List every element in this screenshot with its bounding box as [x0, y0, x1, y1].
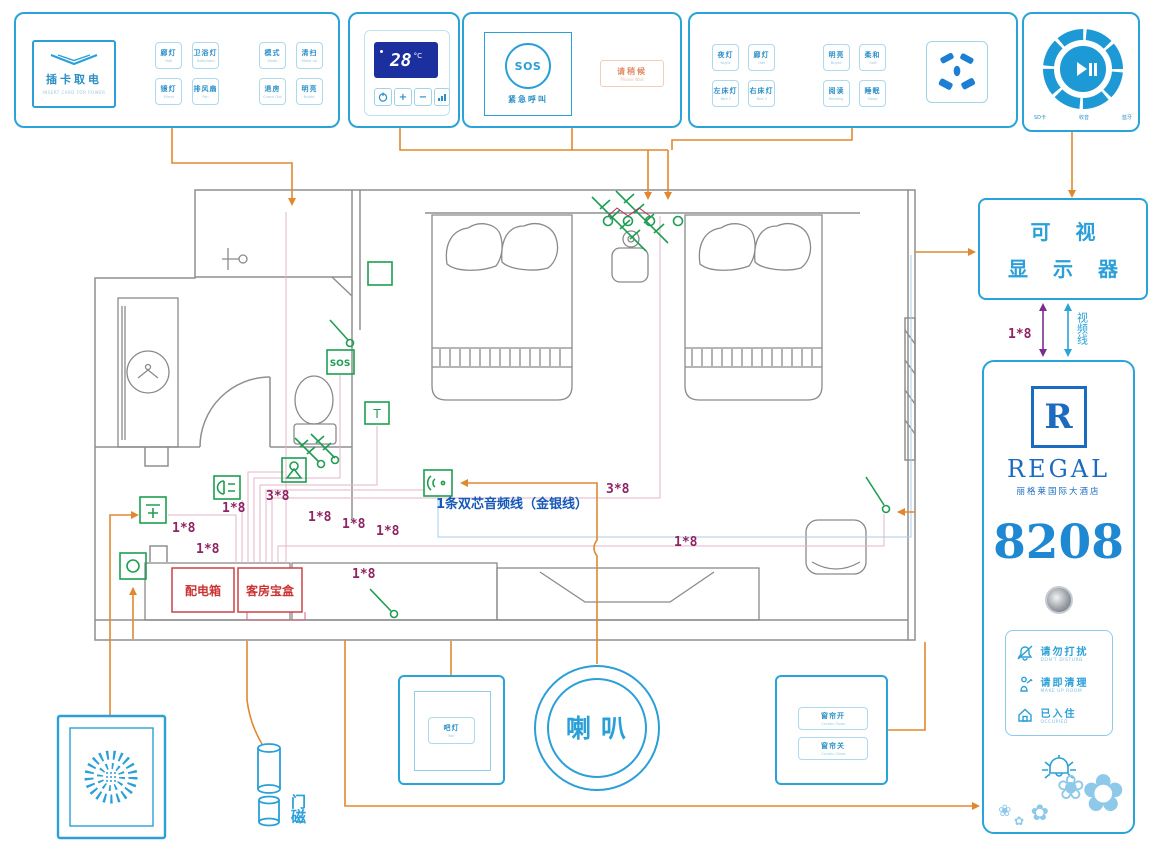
low-cabinet: [292, 563, 497, 620]
sink: [127, 351, 169, 393]
switch-corridor: [370, 589, 391, 611]
fan-icon: [437, 92, 447, 102]
source-bluetooth-label[interactable]: 蓝牙: [1122, 114, 1132, 121]
bed-2: [685, 215, 822, 400]
regal-doorplate: R REGAL 丽格莱国际大酒店 8208 请勿打扰DON'T DISTURB …: [982, 360, 1135, 834]
armchair: [806, 520, 866, 574]
sos-button[interactable]: SOS: [505, 43, 551, 89]
bed-1-pillows: [446, 224, 557, 271]
flower-icon: ✿: [1081, 764, 1125, 824]
wire-gauge-labels: 1*8 1*8 1*8 3*8 1*8 1*8 1*8 1*8 3*8 1*8: [172, 482, 698, 582]
sos-caption: 紧急呼叫: [508, 94, 548, 105]
regal-logo: R: [1031, 386, 1087, 448]
fan-speed-button[interactable]: [434, 88, 450, 106]
svg-text:3*8: 3*8: [606, 482, 630, 497]
door-magnet-label: 门磁: [289, 793, 307, 825]
panel-lights-socket: 夜灯Night 廊灯Hall 左床灯Bed 1 右床灯Bed 2 明亮Brigh…: [688, 12, 1018, 128]
temp-up-button[interactable]: +: [394, 88, 412, 106]
lcd-dot: [380, 50, 383, 53]
source-radio-label[interactable]: 收音: [1079, 114, 1089, 121]
svg-text:1*8: 1*8: [196, 542, 220, 557]
house-icon: [1016, 706, 1034, 724]
flower-icon: ✿: [1031, 801, 1049, 826]
svg-text:1*8: 1*8: [172, 521, 196, 536]
keypad-symbol: [368, 262, 392, 285]
video-cable-label: 视频线: [1076, 311, 1089, 345]
device-symbols: [120, 191, 890, 618]
svg-text:1*8: 1*8: [342, 517, 366, 532]
button-bright[interactable]: 明亮Bright: [296, 78, 323, 105]
flower-icon: ❀: [998, 801, 1011, 820]
card-chevron-icon: [46, 53, 102, 67]
tv: [540, 572, 714, 602]
flower-icon: ✿: [1014, 814, 1024, 828]
hotel-wiring-diagram: 配电箱 客房宝盒 SOS T 1条双芯音频线（金银线） 1*8: [0, 0, 1150, 841]
status-indicator-frame: 请勿打扰DON'T DISTURB 请即清理MAKE UP ROOM 已入住OC…: [1005, 630, 1113, 736]
button-bar-light[interactable]: 吧灯 Bar: [428, 717, 475, 744]
button-exhaust-fan[interactable]: 排风扇Fan: [192, 78, 219, 105]
power-icon: [378, 92, 388, 102]
button-checkout[interactable]: 退房Check Out: [259, 78, 286, 105]
signal-wires: [168, 212, 911, 620]
video-display-box: 可 视 显 示 器: [978, 198, 1148, 300]
button-bathroom-light[interactable]: 卫浴灯Bathroom: [192, 42, 219, 69]
display-title-line1: 可 视: [1022, 216, 1105, 245]
room-controller-label: 客房宝盒: [245, 583, 295, 598]
button-scene-bright[interactable]: 明亮Bright: [823, 44, 850, 71]
button-mirror-light[interactable]: 镜灯Mirror: [155, 78, 182, 105]
card-slot-title: 插卡取电: [46, 71, 102, 87]
doorbell-icon[interactable]: [1037, 750, 1081, 790]
power-socket[interactable]: [926, 41, 988, 103]
svg-text:1*8: 1*8: [376, 524, 400, 539]
switch-right-wall: [866, 477, 884, 505]
svg-text:1*8: 1*8: [674, 535, 698, 550]
regal-hotel-name: 丽格莱国际大酒店: [1016, 485, 1100, 497]
svg-text:3*8: 3*8: [266, 489, 290, 504]
panel-sos: SOS 紧急呼叫 请稍候 Please Wait: [462, 12, 682, 128]
occupied-indicator[interactable]: 已入住OCCUPIED: [1016, 705, 1077, 725]
ceiling-speaker: 喇叭: [535, 666, 659, 790]
power-wires: [110, 128, 1072, 806]
button-left-bed-light[interactable]: 左床灯Bed 1: [712, 80, 739, 107]
power-button[interactable]: [374, 88, 392, 106]
button-scene-soft[interactable]: 柔和Soft: [859, 44, 886, 71]
door-magnet: 门磁: [258, 744, 307, 826]
socket-symbol: [120, 553, 146, 579]
speaker-label: 喇叭: [566, 714, 636, 743]
towel-switch-2: [311, 434, 335, 458]
no-disturb-icon: [1016, 644, 1034, 662]
bedside-switch-1: [592, 197, 646, 251]
peephole: [1045, 586, 1073, 614]
display-title-line2: 显 示 器: [999, 253, 1127, 282]
regal-brand: REGAL: [1007, 455, 1110, 483]
dnd-indicator[interactable]: 请勿打扰DON'T DISTURB: [1016, 643, 1089, 663]
plan-texts: SOS T 1条双芯音频线（金银线）: [330, 359, 588, 512]
panel-card-power: 插卡取电 INSERT CARD FOR POWER 廊灯Hall 卫浴灯Bat…: [14, 12, 340, 128]
button-curtain-close[interactable]: 窗帘关 Curtain Close: [798, 737, 868, 760]
panel-thermostat: 28 °C + −: [348, 12, 460, 128]
room-number: 8208: [993, 515, 1124, 570]
music-dial[interactable]: [1039, 25, 1127, 113]
panel-music-dial: SD卡 收音 蓝牙: [1022, 12, 1140, 132]
distribution-box-label: 配电箱: [185, 583, 221, 598]
please-wait-indicator[interactable]: 请稍候 Please Wait: [600, 60, 664, 87]
panel-bar-light: 吧灯 Bar: [398, 675, 505, 785]
temperature-value: 28: [390, 50, 412, 71]
audio-cable-note: 1条双芯音频线（金银线）: [436, 496, 588, 512]
svg-text:1*8: 1*8: [308, 510, 332, 525]
card-slot-subtitle: INSERT CARD FOR POWER: [43, 90, 106, 95]
bed-2-pillows: [699, 224, 810, 271]
socket-holes-icon: [934, 49, 980, 95]
equipment-boxes: 配电箱 客房宝盒: [172, 568, 302, 612]
temp-down-button[interactable]: −: [414, 88, 432, 106]
sos-module[interactable]: SOS 紧急呼叫: [484, 32, 572, 116]
thermostat-lcd: 28 °C: [374, 42, 438, 78]
button-corridor-light[interactable]: 廊灯Hall: [748, 44, 775, 71]
cleaner-icon: [1016, 675, 1034, 693]
button-makeup[interactable]: 清扫Make up: [296, 42, 323, 69]
button-mode[interactable]: 模式Mode: [259, 42, 286, 69]
furniture: [118, 215, 866, 620]
toilet: [295, 376, 333, 424]
tv-console: [497, 568, 759, 620]
svg-text:1*8: 1*8: [352, 567, 376, 582]
panel-curtain: 窗帘开 Curtain Open 窗帘关 Curtain Close: [775, 675, 888, 785]
sos-label: SOS: [330, 359, 351, 369]
button-right-bed-light[interactable]: 右床灯Bed 2: [748, 80, 775, 107]
button-night-light[interactable]: 夜灯Night: [712, 44, 739, 71]
svg-text:1*8: 1*8: [222, 501, 246, 516]
nightstand: [612, 248, 648, 282]
dial-source-labels: SD卡 收音 蓝牙: [1034, 114, 1132, 121]
source-sd-label[interactable]: SD卡: [1034, 114, 1046, 121]
wall-speaker-grille: [58, 716, 165, 838]
makeup-indicator[interactable]: 请即清理MAKE UP ROOM: [1016, 674, 1089, 694]
card-slot[interactable]: 插卡取电 INSERT CARD FOR POWER: [32, 40, 116, 108]
switch-bathroom: [330, 320, 348, 340]
riser-wire-label: 1*8: [1008, 327, 1032, 342]
phone-label: T: [372, 407, 381, 421]
temperature-unit: °C: [414, 52, 422, 60]
button-curtain-open[interactable]: 窗帘开 Curtain Open: [798, 707, 868, 730]
button-scene-sleep[interactable]: 睡眠Sleep: [859, 80, 886, 107]
riser-arrows: 1*8 视频线: [1008, 303, 1089, 357]
button-hall-light[interactable]: 廊灯Hall: [155, 42, 182, 69]
button-scene-reading[interactable]: 阅读Reading: [823, 80, 850, 107]
